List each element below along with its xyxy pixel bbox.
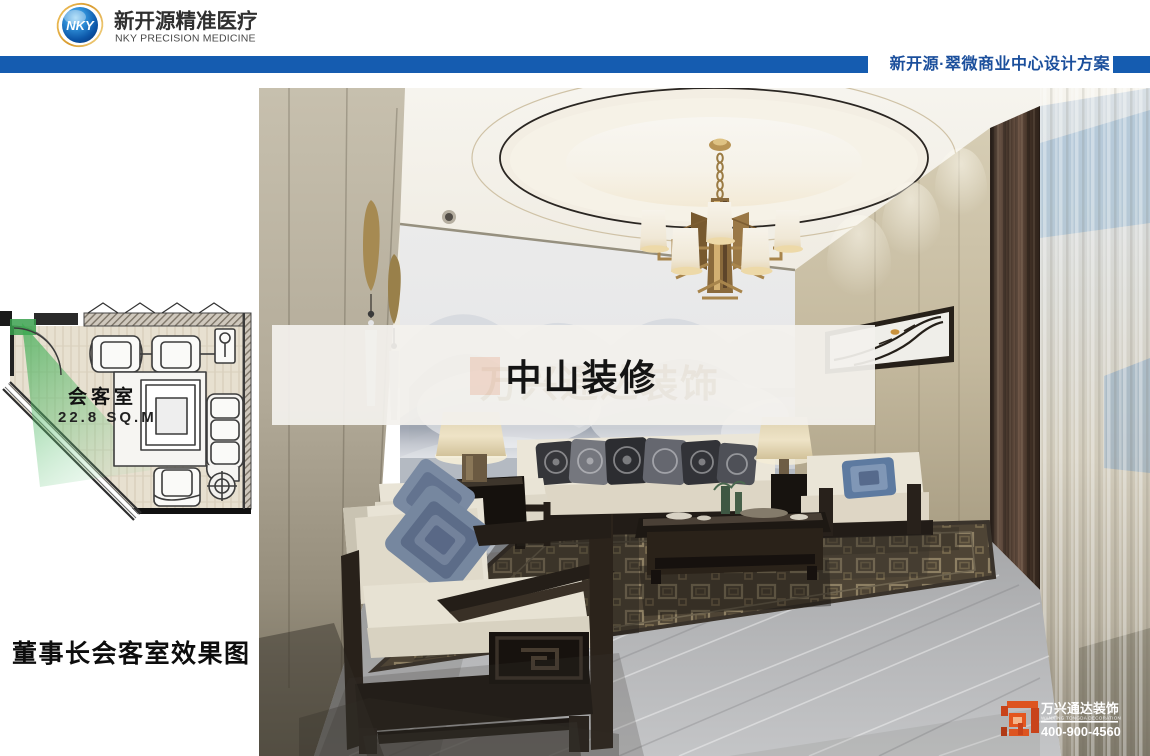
svg-text:会客室: 会客室: [68, 385, 137, 408]
svg-text:NKY: NKY: [66, 18, 95, 33]
svg-text:NKY PRECISION MEDICINE: NKY PRECISION MEDICINE: [115, 33, 256, 45]
svg-text:万兴通达装饰: 万兴通达装饰: [1040, 701, 1119, 716]
svg-text:22.8 SQ.M: 22.8 SQ.M: [58, 409, 157, 426]
svg-text:WANXING TONGDA DECORATION: WANXING TONGDA DECORATION: [1041, 716, 1121, 721]
svg-text:新开源精准医疗: 新开源精准医疗: [114, 9, 258, 33]
svg-text:400-900-4560: 400-900-4560: [1041, 724, 1121, 739]
